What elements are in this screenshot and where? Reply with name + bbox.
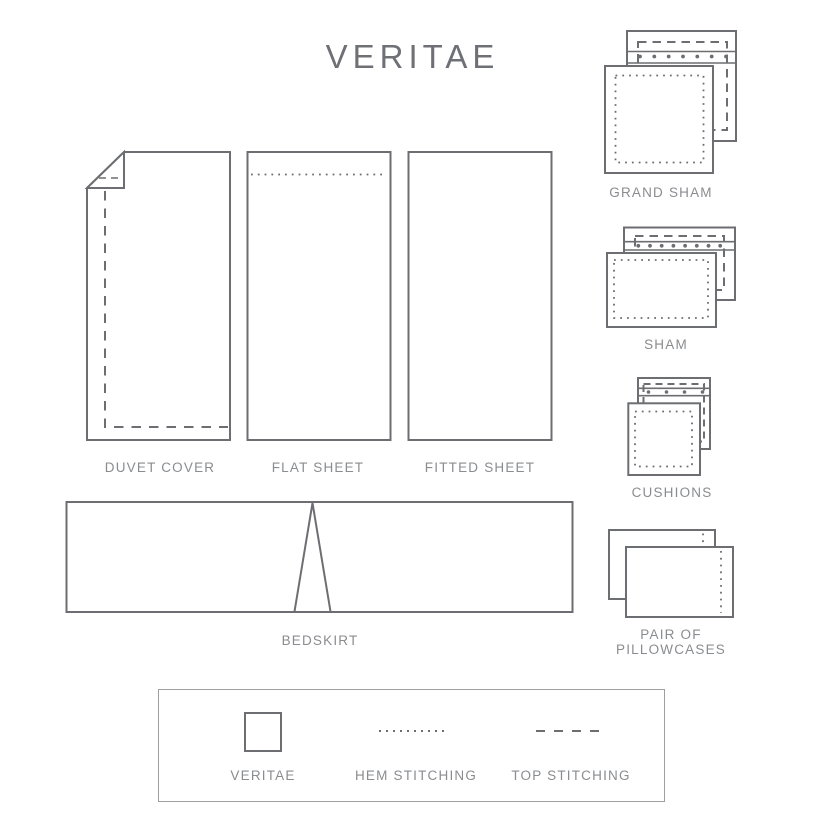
duvet-top-stitching xyxy=(105,191,228,427)
grand-sham-graphic xyxy=(595,25,745,200)
fitted-sheet-label: FITTED SHEET xyxy=(425,460,535,475)
pillowcases-label: PAIR OF PILLOWCASES xyxy=(616,627,726,657)
duvet-cover-label: DUVET COVER xyxy=(105,460,215,475)
pillowcases-label-line1: PAIR OF xyxy=(616,627,726,642)
sham-buttons xyxy=(636,244,722,248)
sham-button-placket xyxy=(625,242,735,250)
legend: VERITAE HEM STITCHING TOP STITCHING xyxy=(158,689,665,802)
bedskirt-outline xyxy=(67,502,573,612)
sham-graphic xyxy=(595,220,745,332)
pillowcases-graphic xyxy=(600,520,745,625)
duvet-cover-graphic xyxy=(60,145,240,450)
legend-veritae-swatch xyxy=(244,712,282,752)
sham-label: SHAM xyxy=(644,337,688,352)
flat-sheet-graphic xyxy=(240,145,398,450)
grand-sham-buttons xyxy=(638,55,728,59)
bedskirt-graphic xyxy=(60,495,580,620)
cushion-buttons xyxy=(647,390,705,394)
bedskirt-pleat xyxy=(295,503,331,612)
grand-sham-front xyxy=(605,66,713,173)
duvet-outline xyxy=(87,152,230,440)
legend-hem-stitching-label: HEM STITCHING xyxy=(355,768,477,783)
grand-sham-label: GRAND SHAM xyxy=(609,185,713,200)
fitted-sheet-outline xyxy=(409,152,552,440)
cushion-front xyxy=(628,403,700,475)
bedskirt-label: BEDSKIRT xyxy=(282,633,359,648)
legend-top-stitching-label: TOP STITCHING xyxy=(511,768,630,783)
legend-top-stitching-swatch xyxy=(536,730,603,733)
sham-front xyxy=(607,253,716,327)
flat-sheet-label: FLAT SHEET xyxy=(272,460,365,475)
cushions-label: CUSHIONS xyxy=(632,485,713,500)
fitted-sheet-graphic xyxy=(400,145,560,450)
cushions-graphic xyxy=(610,368,730,480)
duvet-fold-corner xyxy=(87,152,124,188)
legend-hem-stitching-swatch xyxy=(379,730,449,732)
pillowcase-front xyxy=(626,547,733,617)
legend-veritae-label: VERITAE xyxy=(230,768,295,783)
veritae-bedding-diagram: VERITAE DUVET COVER FLAT SHEET FITTED SH… xyxy=(0,0,825,825)
flat-sheet-outline xyxy=(248,152,391,440)
pillowcases-label-line2: PILLOWCASES xyxy=(616,642,726,657)
